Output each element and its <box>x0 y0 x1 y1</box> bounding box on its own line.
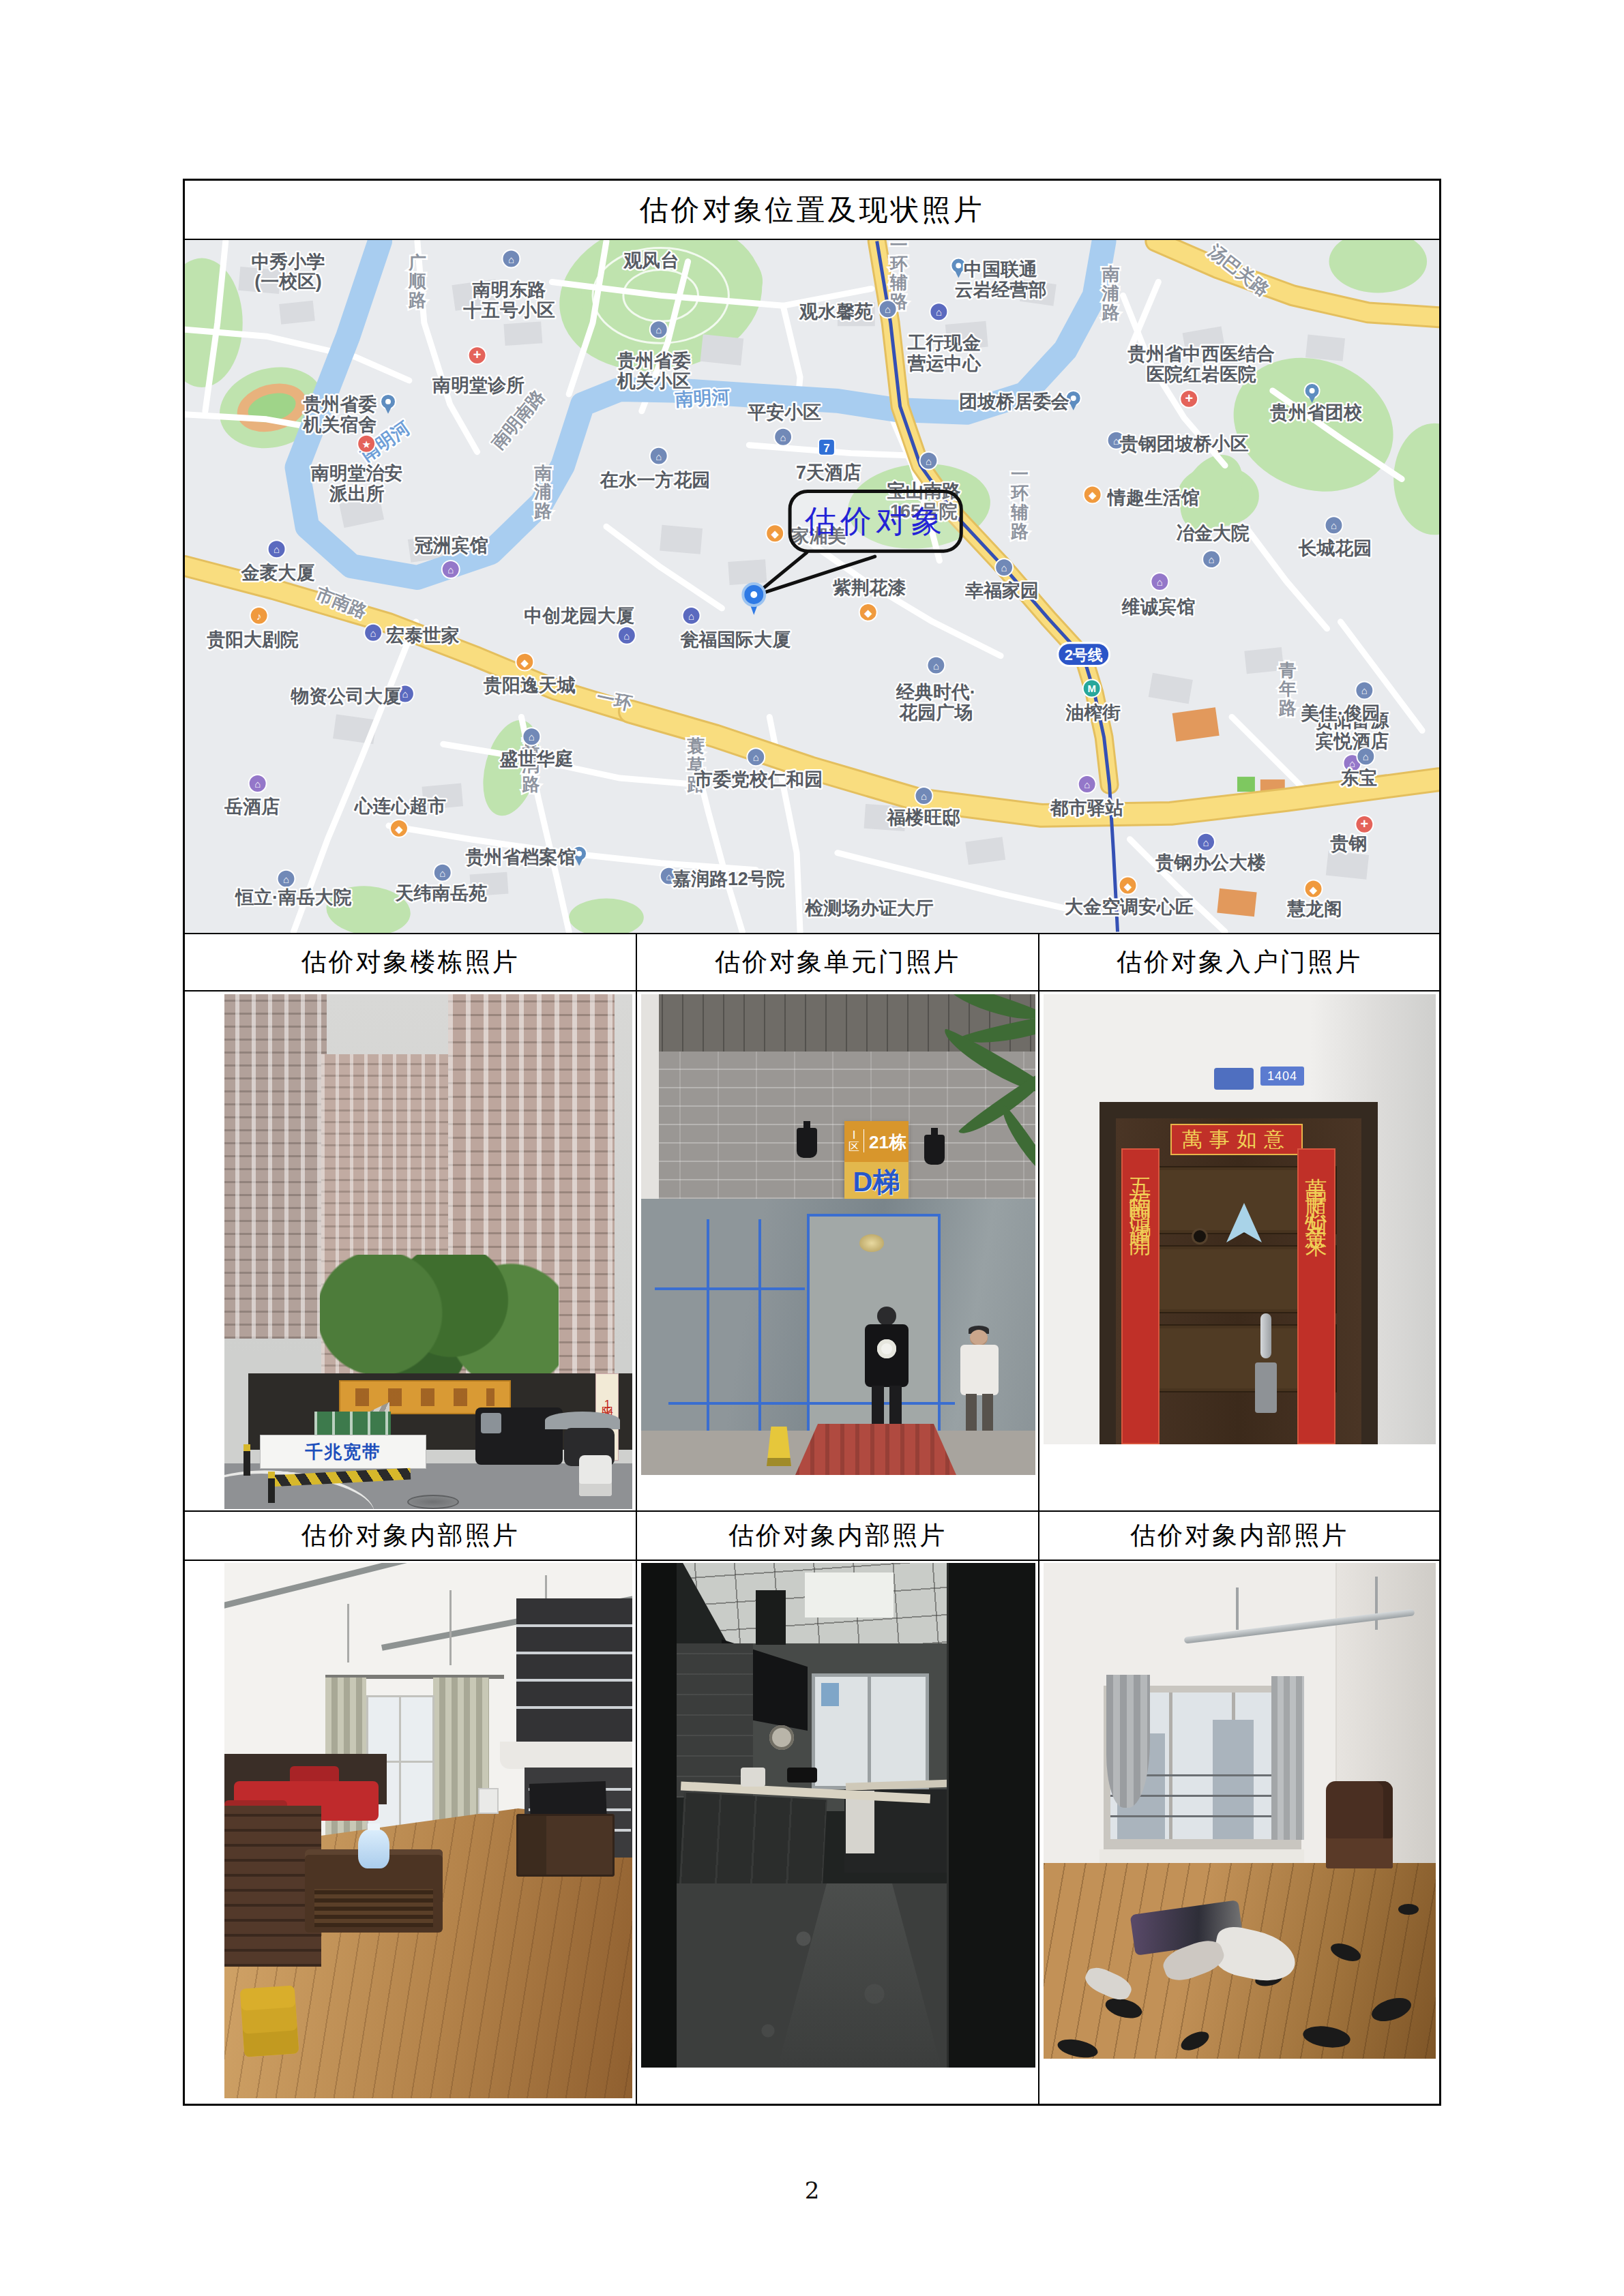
unit-door-photo: Ⅰ区 21栋 D梯 <box>641 994 1035 1475</box>
svg-text:福楼旺邸: 福楼旺邸 <box>886 807 961 828</box>
red-carpet <box>795 1424 956 1475</box>
svg-text:⌂: ⌂ <box>623 630 630 642</box>
svg-text:金袤大厦: 金袤大厦 <box>241 563 315 583</box>
photo-header-row-1: 估价对象楼栋照片 估价对象单元门照片 估价对象入户门照片 <box>185 933 1439 990</box>
svg-text:⌂: ⌂ <box>1203 837 1209 848</box>
svg-text:⌂: ⌂ <box>439 867 445 879</box>
svg-text:⌂: ⌂ <box>370 627 377 639</box>
svg-text:东宝: 东宝 <box>1340 768 1377 788</box>
svg-text:贵州省中西医结合医院红岩医院: 贵州省中西医结合医院红岩医院 <box>1127 344 1275 385</box>
broadband-banner: 千兆宽带 <box>260 1435 426 1469</box>
svg-text:情趣生活馆: 情趣生活馆 <box>1106 488 1200 508</box>
header-unit-door-photo: 估价对象单元门照片 <box>636 934 1038 990</box>
kitchen-window <box>812 1673 929 1789</box>
bollard <box>268 1472 275 1503</box>
svg-text:⌂: ⌂ <box>655 451 662 462</box>
svg-text:美佳·俊园: 美佳·俊园 <box>1300 703 1381 724</box>
wall-lantern-left <box>797 1128 817 1158</box>
svg-text:M: M <box>1087 683 1095 694</box>
manhole-cover <box>407 1495 459 1509</box>
svg-text:◆: ◆ <box>771 528 779 539</box>
wooden-armchair <box>1326 1781 1393 1868</box>
ceiling-pipe <box>224 1563 503 1610</box>
svg-text:青年路: 青年路 <box>1278 661 1297 718</box>
cooktop <box>787 1768 817 1783</box>
interior-photo-bedroom <box>1044 1563 1436 2059</box>
svg-text:一环辅路: 一环辅路 <box>1010 465 1029 541</box>
photo-row-2 <box>185 1560 1439 2104</box>
svg-text:◆: ◆ <box>1089 489 1097 501</box>
wall-lantern-right <box>924 1135 945 1165</box>
location-map: 广顺路南浦路南浦路南明南路市南路一环一环辅路一环辅路汤巴关路嘉润路蓑草路青年路南… <box>185 240 1439 933</box>
ceiling-lamp <box>805 1572 894 1617</box>
peephole <box>1194 1230 1206 1242</box>
person-black-shirt <box>865 1307 909 1429</box>
svg-text:+: + <box>1185 391 1193 406</box>
header-building-photo: 估价对象楼栋照片 <box>185 934 636 990</box>
svg-text:心连心超市: 心连心超市 <box>354 796 447 816</box>
svg-text:油榨街: 油榨街 <box>1065 702 1121 723</box>
photo-row-1: 阳光100幼儿 千兆宽带 <box>185 990 1439 1510</box>
svg-text:中秀小学(一校区): 中秀小学(一校区) <box>252 252 325 293</box>
curtain-bunched <box>1106 1675 1150 1808</box>
header-entry-door-photo: 估价对象入户门照片 <box>1038 934 1439 990</box>
svg-text:工行现金营运中心: 工行现金营运中心 <box>907 333 982 374</box>
interior-photo-kitchen <box>641 1563 1035 2068</box>
blue-tape <box>707 1219 709 1431</box>
podium-trees <box>320 1255 559 1384</box>
svg-text:⌂: ⌂ <box>1363 751 1369 762</box>
yellow-step-stool <box>240 1985 299 2057</box>
photo-table: 估价对象位置及现状照片 广顺路南浦路南浦路南明南路市南路一环一环辅路一环辅路汤巴… <box>183 179 1441 2106</box>
svg-text:⌂: ⌂ <box>283 874 289 885</box>
svg-text:◆: ◆ <box>395 823 403 835</box>
svg-text:紫荆花漆: 紫荆花漆 <box>832 578 906 598</box>
svg-text:恒立·南岳大院: 恒立·南岳大院 <box>234 887 351 908</box>
header-interior-photo-2: 估价对象内部照片 <box>636 1512 1038 1560</box>
wall-clock <box>769 1725 794 1750</box>
table-title-row: 估价对象位置及现状照片 <box>185 181 1439 239</box>
svg-text:⌂: ⌂ <box>1157 576 1163 588</box>
hood-duct <box>756 1590 786 1645</box>
svg-text:♪: ♪ <box>256 610 261 622</box>
svg-text:南浦路: 南浦路 <box>1102 265 1120 322</box>
horizontal-couplet: 萬事如意 <box>1170 1124 1303 1155</box>
right-couplet: 萬事順心如意來 <box>1297 1148 1335 1444</box>
svg-text:⌂: ⌂ <box>933 660 939 672</box>
svg-text:盛世华庭: 盛世华庭 <box>499 749 574 769</box>
svg-text:⌂: ⌂ <box>1113 435 1119 447</box>
svg-text:2号线: 2号线 <box>1065 646 1103 664</box>
svg-text:瓮福国际大厦: 瓮福国际大厦 <box>680 629 791 650</box>
tower-left <box>224 994 327 1339</box>
svg-text:+: + <box>473 347 482 362</box>
svg-text:⌂: ⌂ <box>780 432 786 443</box>
svg-text:贵州省委机关宿舍: 贵州省委机关宿舍 <box>302 394 377 435</box>
svg-text:幸福家园: 幸福家园 <box>964 580 1039 601</box>
svg-text:⌂: ⌂ <box>655 324 662 336</box>
page-number: 2 <box>0 2177 1624 2204</box>
svg-text:⌂: ⌂ <box>529 731 535 743</box>
svg-text:贵州省委机关小区: 贵州省委机关小区 <box>617 351 691 391</box>
svg-text:⌂: ⌂ <box>1331 520 1337 531</box>
svg-text:+: + <box>1361 816 1369 831</box>
svg-text:都市驿站: 都市驿站 <box>1050 798 1124 818</box>
svg-text:7: 7 <box>823 442 829 455</box>
svg-text:宏泰世家: 宏泰世家 <box>385 625 460 646</box>
door-pillar-right <box>947 1563 1035 2068</box>
svg-text:天纬南岳苑: 天纬南岳苑 <box>395 884 488 904</box>
svg-text:贵钢团坡桥小区: 贵钢团坡桥小区 <box>1119 434 1248 454</box>
svg-text:估价对象: 估价对象 <box>804 503 946 539</box>
water-jug <box>358 1829 389 1868</box>
svg-text:⌂: ⌂ <box>254 778 261 790</box>
curtain-right <box>1271 1676 1304 1840</box>
entry-door-photo: 1404 萬事如意 五福臨門鴻運開 萬事順心如意來 <box>1044 994 1436 1444</box>
document-page: 估价对象位置及现状照片 广顺路南浦路南浦路南明南路市南路一环一环辅路一环辅路汤巴… <box>0 0 1624 2296</box>
unit-number-sign: Ⅰ区 21栋 D梯 <box>844 1121 909 1203</box>
header-interior-photo-1: 估价对象内部照片 <box>185 1512 636 1560</box>
svg-text:◆: ◆ <box>864 607 872 618</box>
svg-text:贵阳大剧院: 贵阳大剧院 <box>206 629 299 650</box>
tv-cabinet <box>516 1814 615 1877</box>
svg-text:贵阳逸天城: 贵阳逸天城 <box>483 675 576 696</box>
svg-text:观风台: 观风台 <box>623 250 679 271</box>
door-plate-number: 1404 <box>1260 1067 1304 1086</box>
svg-text:⌂: ⌂ <box>688 610 694 622</box>
header-interior-photo-3: 估价对象内部照片 <box>1038 1512 1439 1560</box>
chandelier <box>859 1234 884 1252</box>
svg-text:一环辅路: 一环辅路 <box>889 240 908 311</box>
window-sill <box>1099 1849 1304 1864</box>
photo-header-row-2: 估价对象内部照片 估价对象内部照片 估价对象内部照片 <box>185 1510 1439 1560</box>
svg-text:平安小区: 平安小区 <box>747 402 821 423</box>
svg-text:贵州省团校: 贵州省团校 <box>1269 402 1363 423</box>
svg-text:冠洲宾馆: 冠洲宾馆 <box>414 535 488 556</box>
svg-text:⌂: ⌂ <box>1209 554 1215 565</box>
svg-text:检测场办证大厅: 检测场办证大厅 <box>805 898 934 919</box>
loft-opening <box>516 1598 632 1743</box>
svg-text:◆: ◆ <box>521 657 529 668</box>
loft-railing <box>516 1624 632 1627</box>
rice-cooker <box>741 1768 765 1787</box>
svg-text:7天酒店: 7天酒店 <box>796 462 861 483</box>
umbrella <box>545 1412 620 1429</box>
svg-text:◆: ◆ <box>1310 884 1318 895</box>
svg-text:冶金大院: 冶金大院 <box>1176 523 1250 543</box>
door-handle <box>1260 1313 1271 1358</box>
svg-text:广顺路: 广顺路 <box>408 253 426 310</box>
person-white-shirt <box>960 1330 999 1439</box>
svg-text:在水一方花园: 在水一方花园 <box>600 470 710 490</box>
svg-text:维诚宾馆: 维诚宾馆 <box>1121 597 1196 617</box>
svg-text:大金空调安心匠: 大金空调安心匠 <box>1065 897 1193 917</box>
loft-fascia <box>500 1742 632 1769</box>
svg-text:长城花园: 长城花园 <box>1298 538 1372 558</box>
blue-tape <box>668 1402 955 1405</box>
svg-text:嘉润路12号院: 嘉润路12号院 <box>673 869 785 889</box>
svg-text:慧龙阁: 慧龙阁 <box>1286 899 1342 919</box>
building-photo: 阳光100幼儿 千兆宽带 <box>224 994 632 1509</box>
svg-text:南明东路十五号小区: 南明东路十五号小区 <box>462 280 555 320</box>
svg-text:⌂: ⌂ <box>926 456 932 467</box>
svg-text:⌂: ⌂ <box>753 751 759 763</box>
svg-text:⌂: ⌂ <box>885 303 891 315</box>
svg-text:★: ★ <box>361 438 370 450</box>
svg-text:中创龙园大厦: 中创龙园大厦 <box>524 606 634 626</box>
svg-text:⌂: ⌂ <box>1001 562 1007 573</box>
heater-box <box>478 1788 499 1814</box>
svg-text:贵州省档案馆: 贵州省档案馆 <box>465 847 576 867</box>
plastic-chair <box>579 1455 612 1496</box>
svg-text:贵钢办公大楼: 贵钢办公大楼 <box>1155 852 1266 873</box>
svg-text:团坡桥居委会: 团坡桥居委会 <box>959 391 1069 412</box>
left-couplet: 五福臨門鴻運開 <box>1121 1148 1160 1444</box>
blue-tape <box>758 1219 761 1431</box>
blue-tape <box>655 1287 805 1290</box>
svg-text:⌂: ⌂ <box>508 254 514 265</box>
svg-text:⌂: ⌂ <box>921 790 927 802</box>
svg-text:南浦路: 南浦路 <box>533 464 552 521</box>
svg-text:贵钢: 贵钢 <box>1330 833 1368 854</box>
svg-text:南明堂诊所: 南明堂诊所 <box>432 375 525 396</box>
svg-text:物资公司大厦: 物资公司大厦 <box>291 686 402 706</box>
svg-text:中国联通云岩经营部: 中国联通云岩经营部 <box>955 259 1047 300</box>
svg-text:⌂: ⌂ <box>936 306 942 318</box>
door-lock <box>1255 1362 1277 1413</box>
svg-text:⌂: ⌂ <box>1084 779 1090 790</box>
svg-text:观水馨苑: 观水馨苑 <box>799 301 873 322</box>
svg-text:⌂: ⌂ <box>666 871 672 882</box>
svg-text:◆: ◆ <box>1124 880 1132 892</box>
svg-text:岳酒店: 岳酒店 <box>224 796 280 817</box>
bollard <box>243 1444 250 1476</box>
svg-text:⌂: ⌂ <box>447 564 454 576</box>
map-row: 广顺路南浦路南浦路南明南路市南路一环一环辅路一环辅路汤巴关路嘉润路蓑草路青年路南… <box>185 239 1439 933</box>
svg-text:市委党校仁和园: 市委党校仁和园 <box>694 769 823 790</box>
svg-text:⌂: ⌂ <box>1361 685 1368 696</box>
table-title: 估价对象位置及现状照片 <box>640 191 985 229</box>
interior-photo-living-room <box>224 1563 632 2098</box>
svg-text:经典时代·花园广场: 经典时代·花园广场 <box>896 682 976 723</box>
svg-text:⌂: ⌂ <box>274 543 280 555</box>
door-jamb-left <box>641 1563 677 2068</box>
door-plate-left <box>1214 1068 1254 1090</box>
svg-text:⌂: ⌂ <box>402 688 408 700</box>
